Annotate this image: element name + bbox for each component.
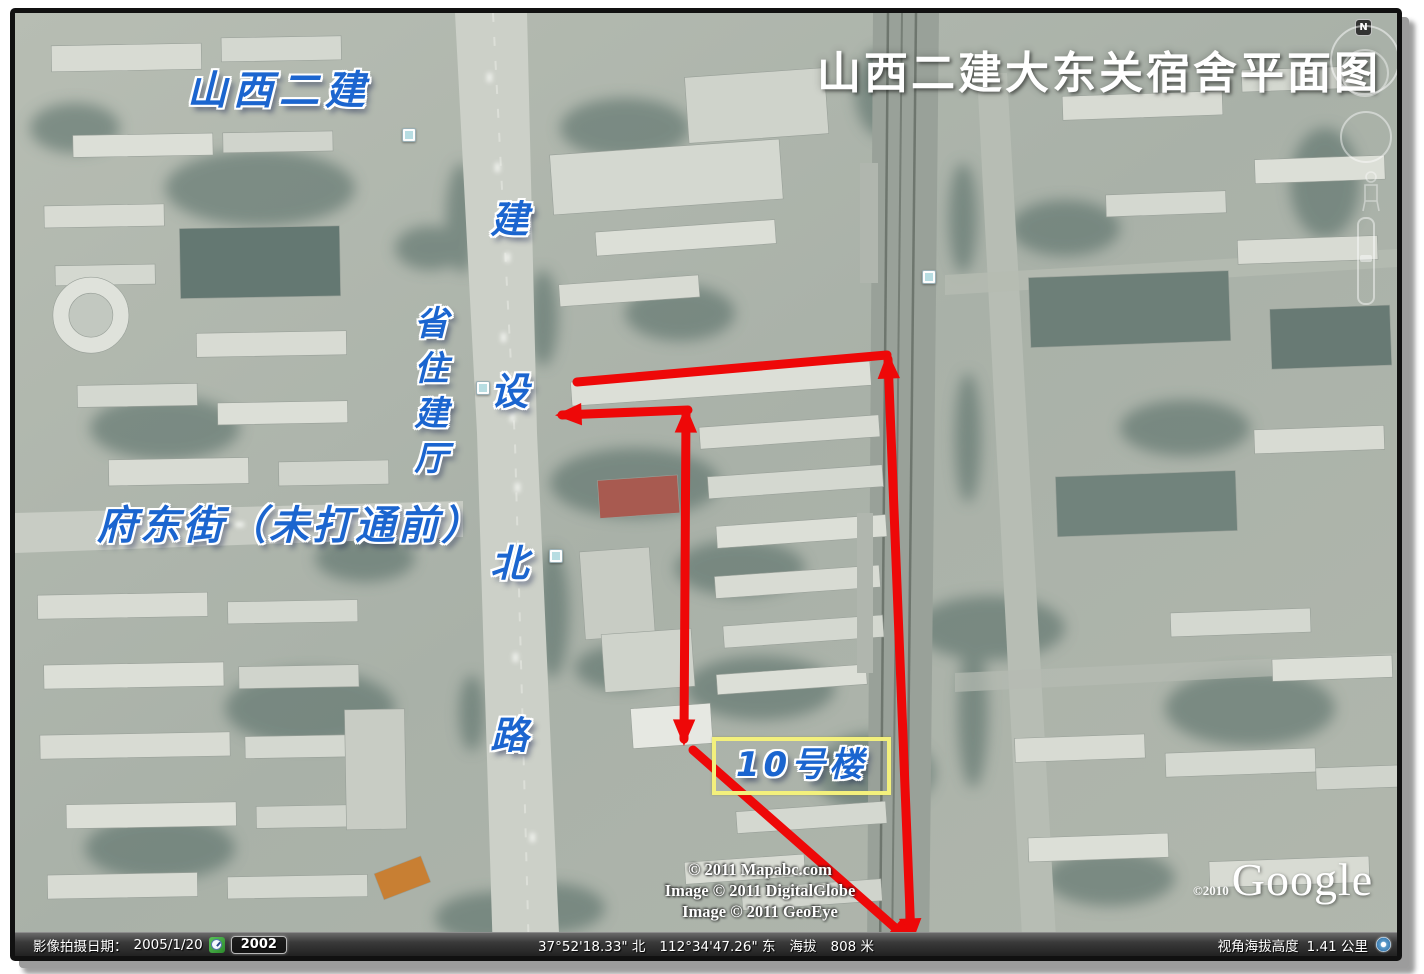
boundary-west-line	[684, 413, 686, 739]
poi-icon[interactable]	[402, 128, 416, 142]
google-copyright-year: ©2010	[1193, 883, 1229, 899]
status-left: 影像拍摄日期：2005/1/20 2002	[33, 935, 287, 955]
elevation-value: 808 米	[830, 935, 874, 955]
copyright-line: © 2011 Mapabc.com	[625, 859, 895, 880]
page-title: 山西二建大东关宿舍平面图	[817, 37, 1362, 101]
company-label: 山西二建	[187, 70, 371, 112]
zoom-slider-handle[interactable]	[1360, 255, 1372, 262]
google-logo: Google	[1232, 853, 1373, 906]
poi-icon[interactable]	[549, 549, 563, 563]
elevation-label: 海拔	[789, 935, 816, 955]
status-eye-altitude: 视角海拔高度 1.41 公里	[1218, 935, 1391, 955]
image-date-label: 影像拍摄日期：	[33, 935, 128, 955]
copyright-line: Image © 2011 GeoEye	[625, 901, 895, 922]
agency-label: 省住建厅	[409, 305, 445, 485]
zoom-slider[interactable]	[1357, 217, 1375, 305]
move-joystick[interactable]	[1340, 111, 1392, 163]
boundary-east-line	[888, 359, 911, 938]
boundary-top-line	[577, 355, 887, 382]
timeline-clock-icon[interactable]	[209, 937, 225, 953]
eye-altitude-label: 视角海拔高度	[1218, 935, 1299, 955]
satellite-map-viewport[interactable]: 山西二建大东关宿舍平面图 山西二建 建设北路 省住建厅 府东街（未打通前） 10…	[15, 13, 1397, 956]
google-watermark: ©2010 Google	[1193, 853, 1373, 906]
pegman-icon[interactable]	[1361, 171, 1381, 213]
image-date-value: 2005/1/20	[134, 937, 203, 953]
status-bar: 影像拍摄日期：2005/1/20 2002 37°52'18.33" 北 112…	[15, 932, 1397, 956]
status-coordinates: 37°52'18.33" 北 112°34'47.26" 东 海拔 808 米	[538, 935, 874, 955]
screenshot-stage: 山西二建大东关宿舍平面图 山西二建 建设北路 省住建厅 府东街（未打通前） 10…	[0, 0, 1424, 974]
boundary-west-arrow-line	[562, 410, 688, 415]
eye-altitude-value: 1.41 公里	[1307, 935, 1368, 955]
boundary-annotation-lines	[15, 13, 1397, 956]
timeline-year-button[interactable]: 2002	[231, 936, 287, 954]
poi-icon[interactable]	[922, 270, 936, 284]
poi-icon[interactable]	[476, 381, 490, 395]
eye-altitude-icon	[1376, 937, 1391, 952]
building-10-label: 10号楼	[736, 748, 867, 784]
copyright-line: Image © 2011 DigitalGlobe	[625, 880, 895, 901]
road-name-label: 建设北路	[485, 199, 525, 887]
longitude-value: 112°34'47.26" 东	[659, 935, 775, 955]
street-label: 府东街（未打通前）	[97, 505, 484, 547]
look-joystick[interactable]	[1341, 49, 1389, 97]
google-earth-window: 山西二建大东关宿舍平面图 山西二建 建设北路 省住建厅 府东街（未打通前） 10…	[10, 8, 1402, 961]
imagery-copyright: © 2011 Mapabc.com Image © 2011 DigitalGl…	[625, 859, 895, 922]
latitude-value: 37°52'18.33" 北	[538, 935, 645, 955]
building-10-highlight-box: 10号楼	[712, 737, 891, 795]
